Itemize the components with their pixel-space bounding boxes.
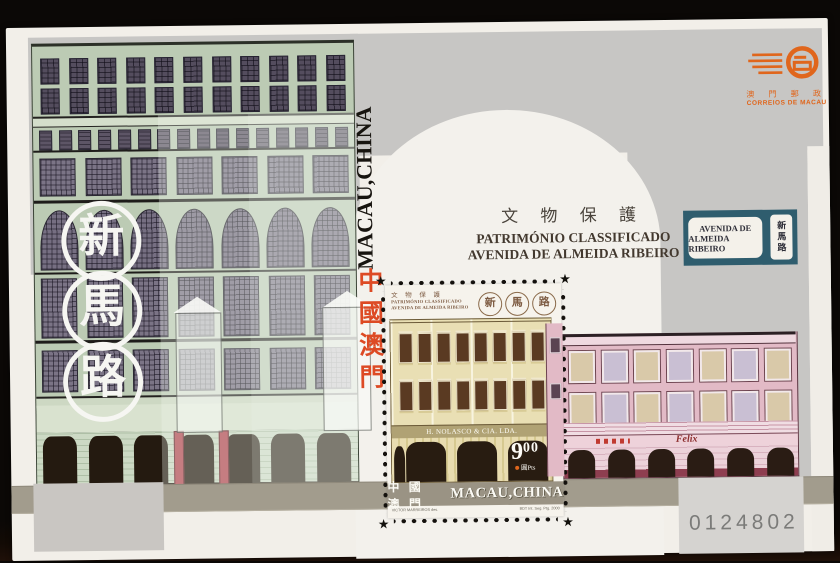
arcade-openings: [568, 447, 794, 478]
green-building-illustration: 新 馬 路: [31, 40, 359, 489]
plaque-line2: ALMEIDA RIBEIRO: [688, 232, 762, 253]
bottom-left-gray-panel: [33, 482, 164, 552]
corner-star-icon: ★: [562, 515, 574, 528]
seal-char: 路: [80, 352, 127, 404]
stamp-seal-3: 路: [532, 291, 556, 315]
souvenir-sheet: 新 馬 路 MACAU,CHINA 中國澳門 文 物 保 護 PATRIMÓNI…: [6, 18, 834, 561]
red-sign-marks: [596, 438, 630, 443]
heritage-cjk: 文 物 保 護: [458, 200, 688, 228]
band-latin: MACAU,CHINA: [450, 484, 563, 502]
stamp-country-band: 中 國 澳 門 MACAU,CHINA: [387, 481, 563, 506]
imprint-designer: VICTOR MARREIROS des.: [392, 508, 439, 513]
street-seal-1: 新: [61, 200, 142, 281]
stamp-window-row-1: [399, 331, 545, 361]
corner-star-icon: ★: [378, 517, 390, 530]
stamp-seal-1: 新: [478, 292, 502, 316]
vertical-title-latin: MACAU,CHINA: [351, 127, 389, 269]
denomination: 900 圓Pts: [499, 438, 551, 472]
seal-char: 馬: [512, 297, 523, 309]
plaque-line1: AVENIDA DE: [699, 222, 751, 233]
heritage-text-block: 文 物 保 護 PATRIMÓNIO CLASSIFICADO AVENIDA …: [458, 200, 689, 264]
correios-de-macau-logo: 澳 門 郵 政 CORREIOS DE MACAU: [744, 42, 829, 105]
stamp-header: 文 物 保 護 PATRIMÓNIO CLASSIFICADO AVENIDA …: [391, 288, 468, 311]
seal-char: 新: [78, 211, 125, 263]
value-cents: 00: [523, 441, 539, 456]
felix-shop-sign: Felix: [676, 434, 698, 445]
cornice: [562, 331, 796, 346]
green-top-window-row-1: [40, 55, 345, 83]
pink-building-illustration: Felix: [562, 331, 800, 479]
value-unit: 圓Pts: [499, 461, 551, 472]
portico-bay: [175, 312, 222, 433]
post-emblem-icon: [744, 42, 828, 83]
stamp: ★ ★ ★ ★ 文 物 保 護 PATRIMÓNIO CLASSIFICADO …: [375, 273, 574, 529]
stamp-window-row-2: [399, 379, 545, 409]
pediment: [173, 296, 221, 313]
street-plaque: AVENIDA DE ALMEIDA RIBEIRO 新馬路: [683, 209, 798, 265]
plaque-cjk-panel: 新馬路: [770, 214, 793, 259]
seal-char: 路: [539, 296, 550, 308]
seal-char: 新: [485, 297, 496, 309]
green-top-window-row-2: [41, 85, 346, 113]
pink-window-row-1: [569, 348, 791, 379]
pink-arcade: [564, 444, 798, 478]
stamp-paper: 文 物 保 護 PATRIMÓNIO CLASSIFICADO AVENIDA …: [385, 283, 564, 518]
sliver-window: [550, 337, 561, 353]
post-logo-latin: CORREIOS DE MACAU: [745, 99, 829, 107]
stamp-seal-2: 馬: [505, 292, 529, 316]
heritage-line2: AVENIDA DE ALMEIDA RIBEIRO: [458, 245, 688, 264]
serial-number: 0124802: [688, 510, 800, 535]
stamp-header-line2: AVENIDA DE ALMEIDA RIBEIRO: [391, 304, 468, 311]
band-cjk: 中 國 澳 門: [387, 477, 443, 512]
sliver-window: [550, 383, 561, 399]
plaque-text-panel: AVENIDA DE ALMEIDA RIBEIRO: [688, 217, 762, 259]
imprint-printer: BDT Int. Seg. Ptg. 2000: [520, 506, 560, 510]
stamp-imprints: VICTOR MARREIROS des. BDT Int. Seg. Ptg.…: [392, 506, 560, 512]
seal-char: 馬: [79, 281, 126, 333]
pink-window-row-2: [569, 390, 791, 421]
